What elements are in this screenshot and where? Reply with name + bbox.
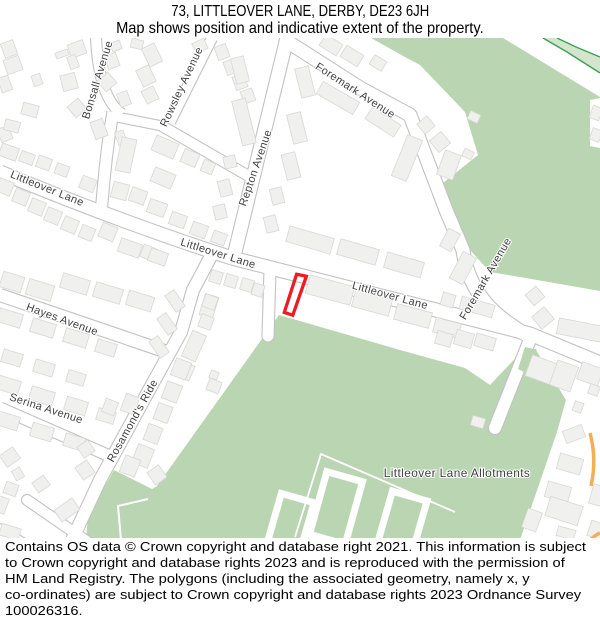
svg-text:Rowsley Avenue: Rowsley Avenue — [158, 45, 206, 129]
svg-text:Littleover Lane Allotments: Littleover Lane Allotments — [384, 466, 531, 480]
